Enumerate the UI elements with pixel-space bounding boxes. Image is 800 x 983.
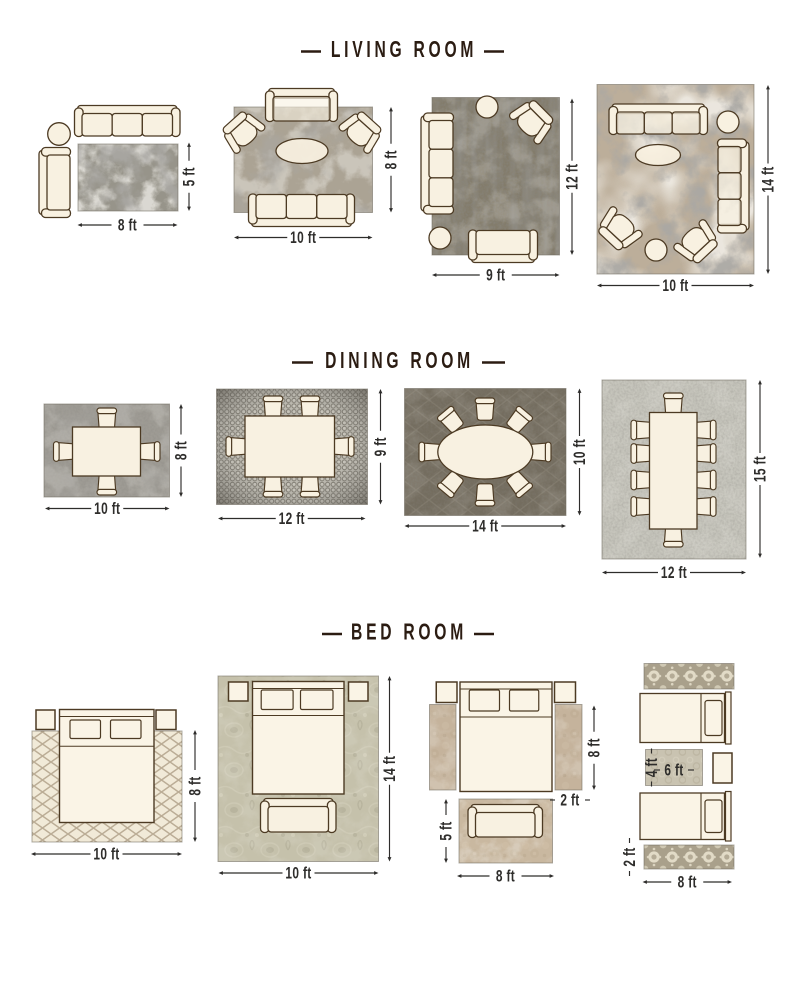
svg-text:9 ft: 9 ft — [486, 267, 505, 286]
svg-text:BED ROOM: BED ROOM — [351, 620, 467, 646]
svg-text:5 ft: 5 ft — [181, 167, 200, 186]
svg-text:4 ft: 4 ft — [643, 758, 662, 777]
svg-text:8 ft: 8 ft — [586, 738, 605, 757]
svg-text:8 ft: 8 ft — [383, 150, 402, 169]
svg-text:10 ft: 10 ft — [571, 439, 590, 465]
svg-text:6 ft: 6 ft — [664, 762, 683, 781]
svg-text:DINING ROOM: DINING ROOM — [325, 348, 474, 374]
svg-text:12 ft: 12 ft — [279, 510, 305, 529]
svg-text:15 ft: 15 ft — [752, 456, 771, 482]
svg-text:8 ft: 8 ft — [678, 874, 697, 893]
svg-text:12 ft: 12 ft — [564, 164, 583, 190]
svg-text:2 ft: 2 ft — [560, 792, 579, 811]
svg-text:10 ft: 10 ft — [94, 500, 120, 519]
svg-text:LIVING ROOM: LIVING ROOM — [331, 37, 477, 63]
svg-text:8 ft: 8 ft — [118, 217, 137, 236]
svg-text:14 ft: 14 ft — [472, 518, 498, 537]
svg-text:14 ft: 14 ft — [381, 756, 400, 782]
svg-text:8 ft: 8 ft — [173, 441, 192, 460]
svg-text:10 ft: 10 ft — [285, 865, 311, 884]
svg-text:2 ft: 2 ft — [621, 847, 640, 866]
svg-text:8 ft: 8 ft — [187, 776, 206, 795]
svg-text:10 ft: 10 ft — [662, 277, 688, 296]
svg-text:5 ft: 5 ft — [438, 821, 457, 840]
svg-text:14 ft: 14 ft — [760, 166, 779, 192]
svg-text:8 ft: 8 ft — [496, 868, 515, 887]
svg-text:12 ft: 12 ft — [661, 564, 687, 583]
svg-text:10 ft: 10 ft — [290, 229, 316, 248]
svg-text:9 ft: 9 ft — [372, 437, 391, 456]
svg-text:10 ft: 10 ft — [93, 846, 119, 865]
